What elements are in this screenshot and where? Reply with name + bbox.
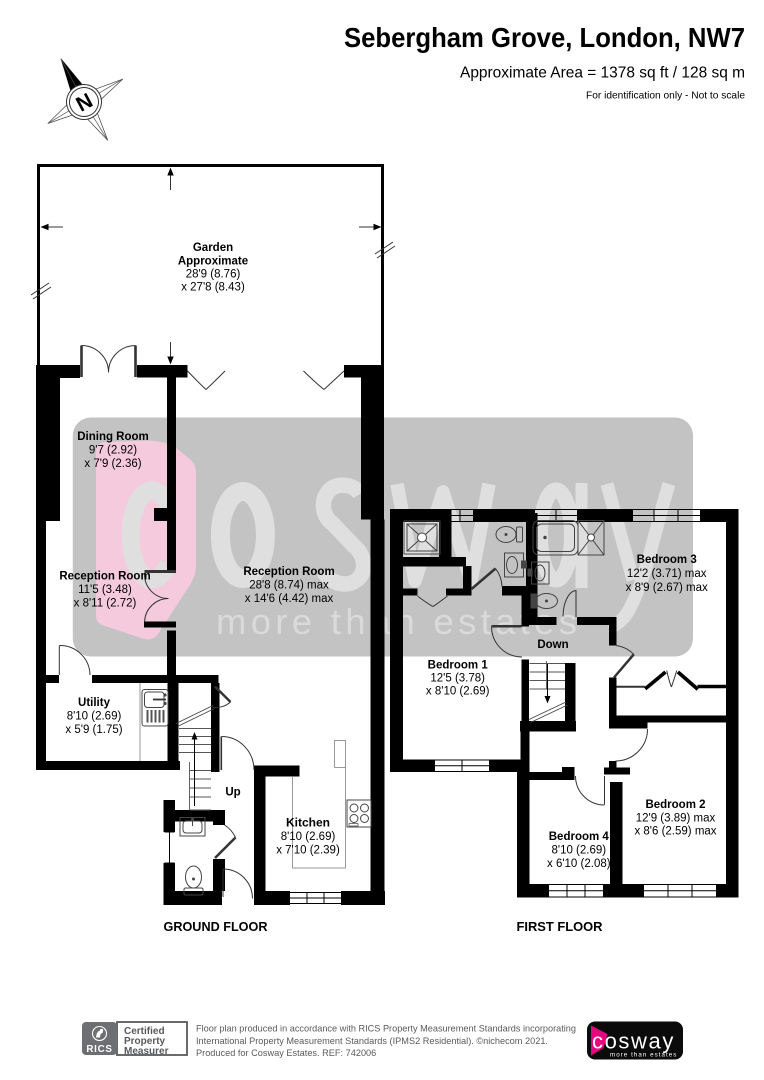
svg-text:Measurer: Measurer [124,1046,169,1057]
svg-text:Reception Room: Reception Room [59,571,150,583]
svg-text:28'9 (8.76): 28'9 (8.76) [186,269,241,281]
svg-text:Kitchen: Kitchen [286,816,330,830]
svg-text:x 7'10 (2.39): x 7'10 (2.39) [276,845,340,857]
svg-text:Garden: Garden [193,242,233,254]
svg-text:Bedroom 3: Bedroom 3 [637,554,697,566]
svg-text:x 14'6 (4.42) max: x 14'6 (4.42) max [245,593,334,605]
svg-text:12'9 (3.89) max: 12'9 (3.89) max [636,813,716,825]
svg-text:Up: Up [225,787,240,799]
svg-text:x 8'6 (2.59) max: x 8'6 (2.59) max [634,826,716,838]
svg-text:GROUND FLOOR: GROUND FLOOR [164,919,269,934]
svg-text:x 5'9 (1.75): x 5'9 (1.75) [65,724,122,736]
svg-text:11'5 (3.48): 11'5 (3.48) [78,584,132,596]
svg-text:x 27'8 (8.43): x 27'8 (8.43) [181,282,245,294]
svg-text:8'10 (2.69): 8'10 (2.69) [281,831,336,843]
svg-text:9'7 (2.92): 9'7 (2.92) [89,445,137,457]
svg-text:Reception Room: Reception Room [243,566,334,578]
svg-text:x 8'10 (2.69): x 8'10 (2.69) [426,686,490,698]
svg-text:Sebergham Grove, London, NW7: Sebergham Grove, London, NW7 [344,22,745,53]
svg-text:Dining Room: Dining Room [77,431,149,443]
svg-text:8'10 (2.69): 8'10 (2.69) [551,845,606,857]
svg-text:For identification only - Not: For identification only - Not to scale [586,90,745,102]
svg-text:12'5 (3.78): 12'5 (3.78) [430,673,485,685]
svg-text:Utility: Utility [78,697,111,709]
svg-text:Bedroom 2: Bedroom 2 [645,799,705,811]
svg-text:12'2 (3.71) max: 12'2 (3.71) max [627,568,707,580]
svg-text:Produced for Cosway Estates.: Produced for Cosway Estates. REF: 742006 [196,1048,376,1058]
svg-text:International Property Measure: International Property Measurement Stand… [196,1036,548,1046]
svg-text:Bedroom 4: Bedroom 4 [549,831,610,843]
svg-text:8'10 (2.69): 8'10 (2.69) [67,711,122,723]
svg-text:FIRST FLOOR: FIRST FLOOR [517,919,604,934]
svg-text:more than estates: more than estates [610,1052,677,1059]
svg-text:x 7'9 (2.36): x 7'9 (2.36) [84,458,141,470]
svg-text:Approximate Area = 1378 sq ft: Approximate Area = 1378 sq ft / 128 sq m [460,65,745,82]
svg-text:28'8 (8.74) max: 28'8 (8.74) max [249,580,329,592]
svg-text:x 8'11 (2.72): x 8'11 (2.72) [74,598,137,610]
svg-text:x 6'10 (2.08): x 6'10 (2.08) [547,858,611,870]
svg-text:Approximate: Approximate [178,256,248,268]
svg-text:RICS: RICS [86,1044,112,1055]
svg-text:Bedroom 1: Bedroom 1 [428,660,489,672]
svg-text:x 8'9 (2.67) max: x 8'9 (2.67) max [626,582,708,594]
svg-text:cosway: cosway [592,1029,675,1054]
svg-text:Floor plan produced in accorda: Floor plan produced in accordance with R… [196,1024,576,1034]
svg-text:Down: Down [537,639,568,651]
